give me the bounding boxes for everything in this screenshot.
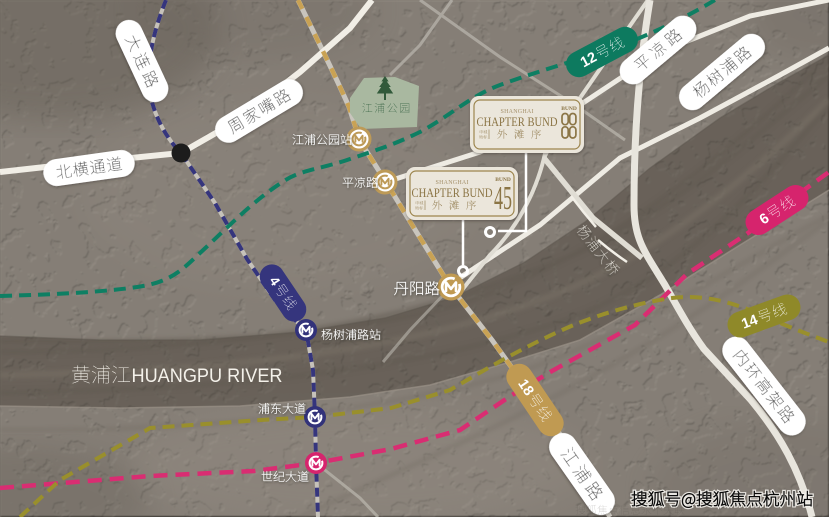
svg-text:45: 45 bbox=[494, 180, 512, 217]
svg-text:BUND: BUND bbox=[561, 106, 577, 112]
svg-text:CHAPTER BUND: CHAPTER BUND bbox=[477, 114, 558, 129]
svg-text:HUANGPU RIVER: HUANGPU RIVER bbox=[132, 366, 283, 387]
svg-text:CHAPTER BUND: CHAPTER BUND bbox=[412, 185, 493, 200]
